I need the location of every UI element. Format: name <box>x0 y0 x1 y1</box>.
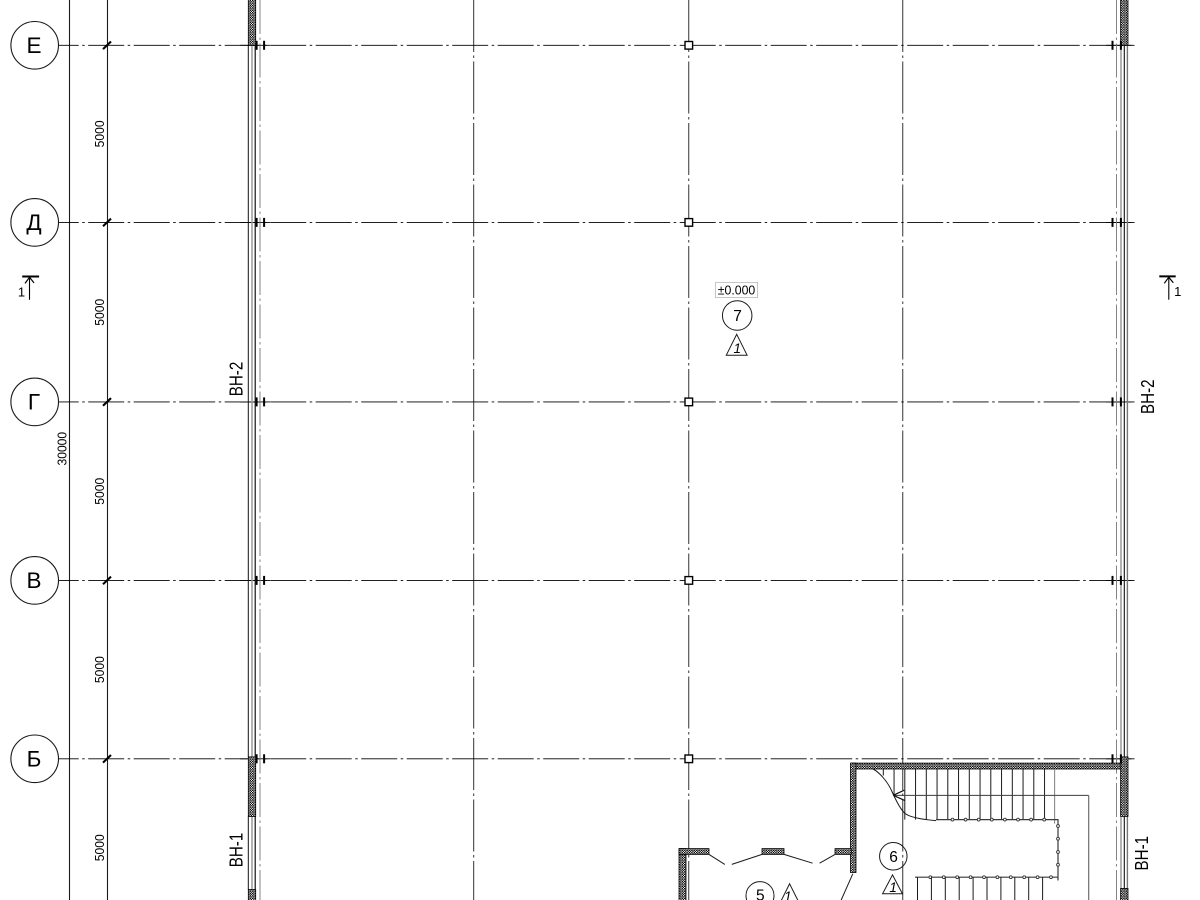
svg-text:±0.000: ±0.000 <box>718 283 756 297</box>
svg-text:1: 1 <box>18 285 25 300</box>
svg-text:5000: 5000 <box>93 656 107 683</box>
svg-text:5000: 5000 <box>93 299 107 326</box>
svg-text:30000: 30000 <box>55 432 70 466</box>
svg-text:1: 1 <box>889 880 897 895</box>
svg-text:Г: Г <box>28 390 40 415</box>
svg-text:ВН-2: ВН-2 <box>226 362 247 397</box>
svg-text:7: 7 <box>733 308 742 325</box>
svg-text:Б: Б <box>27 747 42 772</box>
svg-text:ВН-1: ВН-1 <box>226 833 247 868</box>
svg-text:1: 1 <box>734 341 742 356</box>
svg-text:Е: Е <box>26 33 41 58</box>
svg-text:6: 6 <box>889 849 898 866</box>
svg-text:5000: 5000 <box>93 834 107 861</box>
svg-text:1: 1 <box>784 889 792 900</box>
svg-text:Д: Д <box>26 210 41 235</box>
svg-text:1: 1 <box>1174 284 1181 299</box>
svg-text:5: 5 <box>756 887 765 900</box>
svg-text:5000: 5000 <box>93 120 107 147</box>
svg-text:5000: 5000 <box>93 478 107 505</box>
svg-text:ВН-1: ВН-1 <box>1131 836 1152 871</box>
svg-text:В: В <box>26 568 41 593</box>
svg-text:ВН-2: ВН-2 <box>1137 379 1158 414</box>
